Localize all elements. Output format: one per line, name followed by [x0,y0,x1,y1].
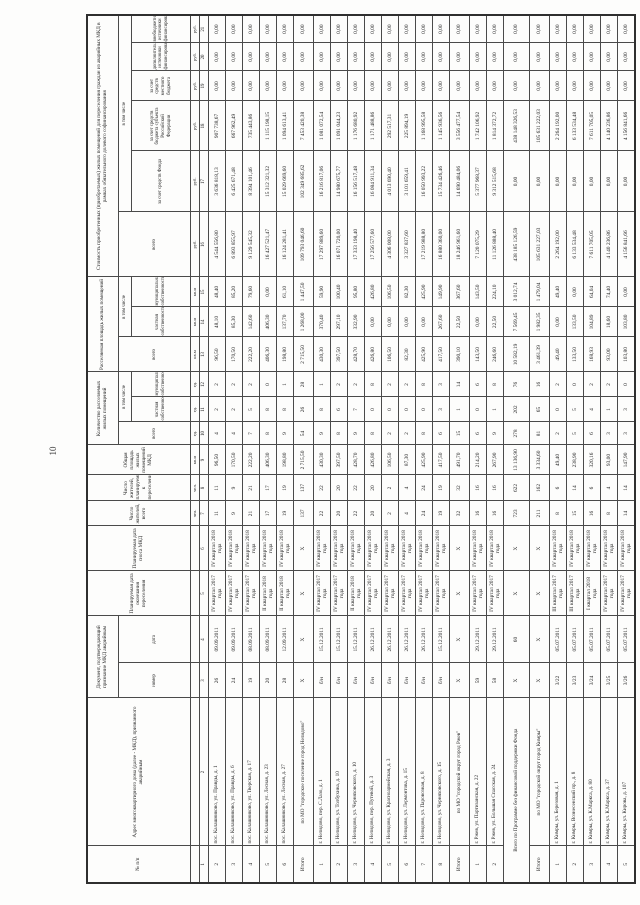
cell-value: 0,00 [314,15,331,43]
cell-value: 19 [277,475,294,501]
unit-cell [191,616,200,663]
cell-value: 198,80 [277,337,294,372]
cell-value: 0,00 [226,71,243,101]
cell-value: 2 [331,372,348,397]
cell-value: 14 690 484,06 [450,151,470,212]
cell-value: 0,00 [530,15,550,43]
cell-address: г. Нелидово, ул. Красноармейская, д. 3 [382,698,399,846]
cell-value: 26 [209,663,226,698]
cell-value: 0,00 [331,43,348,71]
cell-value: 7 611 705,05 [584,212,601,277]
cell-value: 667 962,49 [226,101,243,151]
cell-value: 26.12.2011 [416,616,433,663]
cell-value: 14 [618,501,636,526]
cell-value: 0,00 [618,15,636,43]
table-row: 3г. Кимры, ул. К.Маркса, д. 803/2405.07.… [584,15,601,883]
cell-value: 6 133 534,48 [567,212,584,277]
col-header-cost-intotal: в том числе [119,15,132,212]
cell-value: 723 [504,501,530,526]
cell-value: 2 [226,397,243,422]
cell-value: 16 084 911,34 [365,151,382,212]
cell-value: 60 [504,616,530,663]
col-header-area-municipal: муниципальная собственность [132,277,191,307]
cell-value: 0,00 [260,15,277,43]
cell-value: 54 [294,422,314,445]
column-number-cell: 18 [200,101,209,151]
cell-value: б/н [433,663,450,698]
cell-value: 20 [260,663,277,698]
cell-value: 0,00 [550,151,567,212]
cell-value: 0,00 [209,15,226,43]
cell-value: 417,50 [433,337,450,372]
cell-value: 907 738,67 [209,101,226,151]
cell-value: 0,00 [382,43,399,71]
cell-value: 2 [209,846,226,883]
cell-address: г. Нелидово, пер. С.Лазо, д. 1 [314,698,331,846]
cell-value: IV квартал 2018 года [226,526,243,571]
cell-value: 28 [277,663,294,698]
cell-value: 17 333 198,40 [348,212,365,277]
cell-address: г. Кимры, ул. Березовая, д. 1 [550,698,567,846]
cell-address: г. Нелидово, ул. Черняховского, д. 15 [433,698,450,846]
cell-value: 5 377 968,37 [470,151,487,212]
cell-value: 2 264 192,00 [550,212,567,277]
col-header-address: Адрес многоквартирного дома (далее - МКД… [87,698,191,846]
resettlement-program-table: № п/п Адрес многоквартирного дома (далее… [86,14,636,884]
cell-value: 133,50 [567,307,584,337]
header-row-groups: № п/п Адрес многоквартирного дома (далее… [87,15,119,883]
cell-value: 425,90 [416,277,433,307]
cell-value: 15.12.2011 [348,616,365,663]
cell-value: 3 461,39 [530,337,550,372]
col-header-residents-planned: Число жителей, планируемых к переселению [87,475,191,501]
cell-value: 22 [314,501,331,526]
cell-value: 426,80 [365,337,382,372]
cell-value: IV квартал 2018 года [487,526,504,571]
cell-value: 09.09.2011 [226,616,243,663]
col-header-cost-local: за счет средств местного бюджета [132,71,191,101]
column-number-cell: 1 [200,846,209,883]
cell-value: 20 [365,501,382,526]
cell-value: 0 [470,397,487,422]
cell-value: 8 [365,422,382,445]
cell-value: 106,50 [382,277,399,307]
cell-address: г. Кимры, ул. Кирова, д. 107 [618,698,636,846]
cell-value: 0,00 [550,71,567,101]
cell-value: 0,00 [567,43,584,71]
cell-value: 225 894,19 [399,101,416,151]
cell-value: 0,00 [470,43,487,71]
cell-value: 2 [399,372,416,397]
cell-value: 10 582,19 [504,337,530,372]
cell-value: 16 427 521,47 [260,212,277,277]
cell-value: 2 [382,475,399,501]
cell-value: 8 [433,846,450,883]
cell-value: 9 [226,475,243,501]
cell-value: 3/25 [601,663,618,698]
cell-value: 24 [226,663,243,698]
cell-value: 3 [433,397,450,422]
cell-value: 19 [277,501,294,526]
cell-value: 5 [260,846,277,883]
table-row: Итогопо МО "городское поселение город Не… [294,15,314,883]
column-number-cell: 17 [200,151,209,212]
cell-value: 3/23 [567,663,584,698]
cell-value: б/н [365,663,382,698]
cell-value: 0,00 [530,151,550,212]
table-row: 5г. Нелидово, ул. Красноармейская, д. 3б… [382,15,399,883]
cell-value: 24 [416,501,433,526]
unit-cell: руб. [191,151,200,212]
cell-value: б/н [399,663,416,698]
col-header-count-private: частная собственность [132,397,191,422]
cell-value: 81 [530,422,550,445]
cell-value: 0,00 [487,71,504,101]
col-header-cost-extra: внебюджетные источники финансирования [132,15,191,43]
cell-value: 0,00 [348,43,365,71]
col-header-cost-group: Стоимость приобретенных (приобретаемых) … [87,15,119,277]
cell-value: 16 156 517,48 [348,151,365,212]
cell-value: 0,00 [530,71,550,101]
cell-value: 2 [601,372,618,397]
cell-value: IV квартал 2018 года [243,526,260,571]
cell-value: 0,00 [601,15,618,43]
cell-value: 406,30 [260,337,277,372]
cell-value: 15.12.2011 [314,616,331,663]
cell-value: Х [530,526,550,571]
cell-value: 0,00 [294,71,314,101]
cell-value: 16 216 817,06 [314,151,331,212]
cell-value: 65 [530,397,550,422]
cell-value: 8 [331,422,348,445]
cell-value: 0,00 [294,15,314,43]
cell-value: 29.12.2011 [487,616,504,663]
cell-value: Итого [294,846,314,883]
cell-value: 15 312 321,32 [260,151,277,212]
cell-value: Х [530,571,550,616]
unit-cell [191,571,200,616]
cell-value: б/н [348,663,365,698]
cell-value: Х [450,663,470,698]
cell-value: 0,00 [450,15,470,43]
rotated-table-area: № п/п Адрес многоквартирного дома (далее… [86,16,634,884]
cell-value: 16 [584,501,601,526]
cell-value: 137 [294,475,314,501]
cell-value: 11 [209,475,226,501]
cell-address: г. Кимры, ул. К.Маркса, д. 80 [584,698,601,846]
cell-value: 6 425 671,48 [226,151,243,212]
cell-value: 246,60 [487,337,504,372]
cell-value: 162 [530,475,550,501]
col-header-doc-group: Документ, подтверждающий признание МКД а… [87,616,119,698]
cell-value: 0,00 [550,43,567,71]
cell-value: 0,00 [504,71,530,101]
cell-value: 32 [450,501,470,526]
cell-value: 2 [209,397,226,422]
cell-value: 8 [277,397,294,422]
col-header-cost-fund: за счет средств Фонда [132,151,191,212]
cell-value: 1 [601,397,618,422]
table-row: 2пос. Калашниково, ул. Правды, д. 12609.… [209,15,226,883]
cell-value: 3 [348,846,365,883]
unit-cell: руб. [191,212,200,277]
cell-value: I квартал 2018 года [584,571,601,616]
cell-value: 0,00 [584,43,601,71]
cell-value: 0,00 [567,151,584,212]
unit-cell: кв.м [191,337,200,372]
cell-value: IV квартал 2018 года [314,526,331,571]
cell-address: г. Нелидово, ул. Паровозная, д. 8 [416,698,433,846]
cell-value: 109 793 046,60 [294,212,314,277]
cell-value: 170,50 [226,445,243,475]
cell-value: 0,00 [399,307,416,337]
cell-value: 267,90 [487,445,504,475]
cell-value: 168,93 [584,337,601,372]
cell-value: 1 [470,846,487,883]
cell-value: Х [294,571,314,616]
unit-cell: руб. [191,43,200,71]
table-row: Всего по Программе без финансовой поддер… [504,15,530,883]
cell-value: 292 517,31 [382,101,399,151]
cell-value: 238,90 [567,445,584,475]
cell-value: 29.12.2011 [470,616,487,663]
cell-value: 0,00 [277,43,294,71]
cell-value: 4 [209,422,226,445]
cell-value: 8 [550,501,567,526]
cell-value: Х [530,663,550,698]
cell-value: 26 [294,397,314,422]
cell-value: III квартал 2017 года [567,571,584,616]
cell-value: 14 [567,475,584,501]
cell-value: 1 [314,372,331,397]
unit-cell: ед. [191,372,200,397]
cell-value: 7 120 075,29 [470,212,487,277]
cell-value: 5 [567,422,584,445]
cell-value: 0,00 [584,15,601,43]
cell-value: 8 [314,397,331,422]
cell-value: 05.07.2011 [584,616,601,663]
cell-value: 0,00 [433,15,450,43]
unit-cell [191,698,200,846]
table-row: 5пос. Калашниково, ул. Лесная, д. 232008… [260,15,277,883]
cell-value: 1 [550,846,567,883]
cell-value: 0,00 [331,71,348,101]
cell-value: 3 101 659,41 [399,151,416,212]
cell-value: 0,00 [416,71,433,101]
table-row: Итогопо МО "городской округ город Ржев"Х… [450,15,470,883]
col-header-area-group: Расселяемая площадь жилых помещений [87,277,119,372]
cell-value: Х [504,526,530,571]
cell-value: 0,00 [530,43,550,71]
cell-value: 22,50 [450,307,470,337]
cell-value: 3/22 [550,663,567,698]
col-header-num: № п/п [87,846,191,883]
cell-value: III квартал 2017 года [550,571,567,616]
cell-value: 9 [277,422,294,445]
cell-value: 4 [601,846,618,883]
cell-address: пос. Калашниково, ул. Лесная, д. 23 [260,698,277,846]
col-header-residents-total: Число жителей, всего [87,501,191,526]
unit-cell [191,526,200,571]
cell-value: 8 [416,422,433,445]
cell-value: IV квартал 2017 года [399,571,416,616]
cell-value: 0,00 [260,277,277,307]
cell-value: 3 636 818,13 [209,151,226,212]
cell-value: 0,00 [601,43,618,71]
cell-address: г. Нелидово, ул. Лермонтова, д. 15 [399,698,416,846]
cell-value: 59,90 [314,277,331,307]
table-row: Итогопо МО "городской округ город Кимры"… [530,15,550,883]
cell-value: Итого [450,846,470,883]
cell-value: 93,00 [601,337,618,372]
cell-value: 202 [504,397,530,422]
cell-value: 8 [601,501,618,526]
cell-value: 22 [314,475,331,501]
unit-cell: ед. [191,397,200,422]
column-number-cell: 15 [200,277,209,307]
cell-value: 15 [567,501,584,526]
cell-value: 426,80 [365,445,382,475]
cell-value: 6 [433,422,450,445]
cell-value: 3 [433,372,450,397]
cell-value: 9 312 515,68 [487,151,504,212]
page-number: 10 [48,442,62,460]
cell-value: 5 [382,846,399,883]
cell-value: 0,00 [348,15,365,43]
cell-value: 105 631 227,03 [530,212,550,277]
cell-value: 4 [226,422,243,445]
table-row: 4г. Кимры, ул. К.Маркса, д. 373/2505.07.… [601,15,618,883]
cell-value: IV квартал 2017 года [618,571,636,616]
cell-value: 0,00 [584,71,601,101]
cell-value: 8 [416,372,433,397]
cell-value: 0,00 [601,151,618,212]
cell-value: 16 071 720,00 [331,212,348,277]
cell-value: 6 133 534,48 [567,101,584,151]
cell-value: 0,00 [416,307,433,337]
cell-value: 105 631 222,03 [530,101,550,151]
cell-value: 267,60 [433,307,450,337]
col-header-count-total: всего [119,422,191,445]
cell-value: 4 [601,475,618,501]
col-header-doc-date: дата [119,616,191,663]
cell-value: 0,00 [618,43,636,71]
cell-value: 0 [365,397,382,422]
cell-value: IV квартал 2018 года [601,526,618,571]
column-number-cell: 14 [200,307,209,337]
cell-value: 7 [243,422,260,445]
cell-value: 21 [243,475,260,501]
cell-value: 103,80 [618,337,636,372]
cell-value: 26.12.2011 [365,616,382,663]
resettlement-table-landscape: № п/п Адрес многоквартирного дома (далее… [86,16,634,884]
cell-value: 4 [365,846,382,883]
table-row: 5г. Кимры, ул. Кирова, д. 1073/2605.07.2… [618,15,636,883]
cell-value: 491,70 [450,445,470,475]
cell-value: 2 [584,372,601,397]
cell-value: 15 029 669,60 [277,151,294,212]
cell-value: 16 [487,475,504,501]
table-row: 2г. Нелидово, ул. Толбухина, д. 10б/н15.… [331,15,348,883]
cell-value: 222,20 [243,445,260,475]
cell-value: 20 [365,475,382,501]
cell-value: 0,00 [504,43,530,71]
cell-value: 18,60 [601,307,618,337]
cell-value: 170,50 [226,337,243,372]
cell-value: 28 [294,372,314,397]
cell-value: 0,00 [487,43,504,71]
cell-value: 102 349 685,62 [294,151,314,212]
cell-value: 0,00 [399,43,416,71]
col-header-count-intotal: в том числе [119,372,132,422]
cell-value: 7 453 420,38 [294,101,314,151]
cell-value: 0,00 [243,71,260,101]
cell-value: 09.09.2011 [209,616,226,663]
cell-address: по МО "городской округ город Ржев" [450,698,470,846]
cell-value: 106,50 [382,445,399,475]
table-row: 8г. Нелидово, ул. Черняховского, д. 15б/… [433,15,450,883]
cell-value: IV квартал 2017 года [382,571,399,616]
table-row: 1г. Ржев, ул. Партизанская, д. 225929.12… [470,15,487,883]
cell-value: 16 050 993,22 [416,151,433,212]
cell-value: 390,10 [450,337,470,372]
cell-value: 0,00 [450,71,470,101]
cell-value: 26.12.2011 [399,616,416,663]
cell-value: 103,80 [618,307,636,337]
cell-value: 6 893 855,97 [226,212,243,277]
cell-value: 1 091 044,23 [331,101,348,151]
cell-value: 2 [550,422,567,445]
cell-value: 15 [450,422,470,445]
cell-value: 0,00 [382,15,399,43]
cell-value: 87,30 [399,445,416,475]
cell-value: 426,80 [365,277,382,307]
cell-value: Х [294,526,314,571]
cell-value: 0,00 [618,151,636,212]
cell-value: IV квартал 2018 года [260,526,277,571]
cell-value: 8 394 101,46 [243,151,260,212]
cell-value: 100,40 [331,277,348,307]
cell-value: 9 [226,501,243,526]
cell-value: 142,60 [243,307,260,337]
cell-value: 1 171 488,86 [365,101,382,151]
cell-value: 6 [550,475,567,501]
cell-value: 61,10 [277,277,294,307]
cell-value: 05.07.2011 [550,616,567,663]
cell-value: 4 013 690,40 [382,151,399,212]
cell-value: 9 [314,422,331,445]
units-row: чел.чел.кв.мед.ед.ед.кв.мкв.мкв.мруб.руб… [191,15,200,883]
cell-value: 735 443,86 [243,101,260,151]
cell-value: 6 [584,475,601,501]
unit-cell [191,846,200,883]
column-number-cell: 8 [200,475,209,501]
unit-cell: кв.м [191,445,200,475]
cell-value: 49,40 [550,277,567,307]
cell-value: 32 [450,475,470,501]
cell-value: 0,00 [470,307,487,337]
cell-address: Всего по Программе без финансовой поддер… [504,698,530,883]
cell-value: 0 [416,397,433,422]
cell-value: 1 094 613,41 [277,101,294,151]
cell-value: Х [450,571,470,616]
column-number-cell: 13 [200,337,209,372]
cell-value: 7 569,45 [504,307,530,337]
column-number-cell: 9 [200,445,209,475]
cell-value: 15 734 426,46 [433,151,450,212]
cell-value: 0,00 [226,15,243,43]
cell-value: 2 [243,372,260,397]
